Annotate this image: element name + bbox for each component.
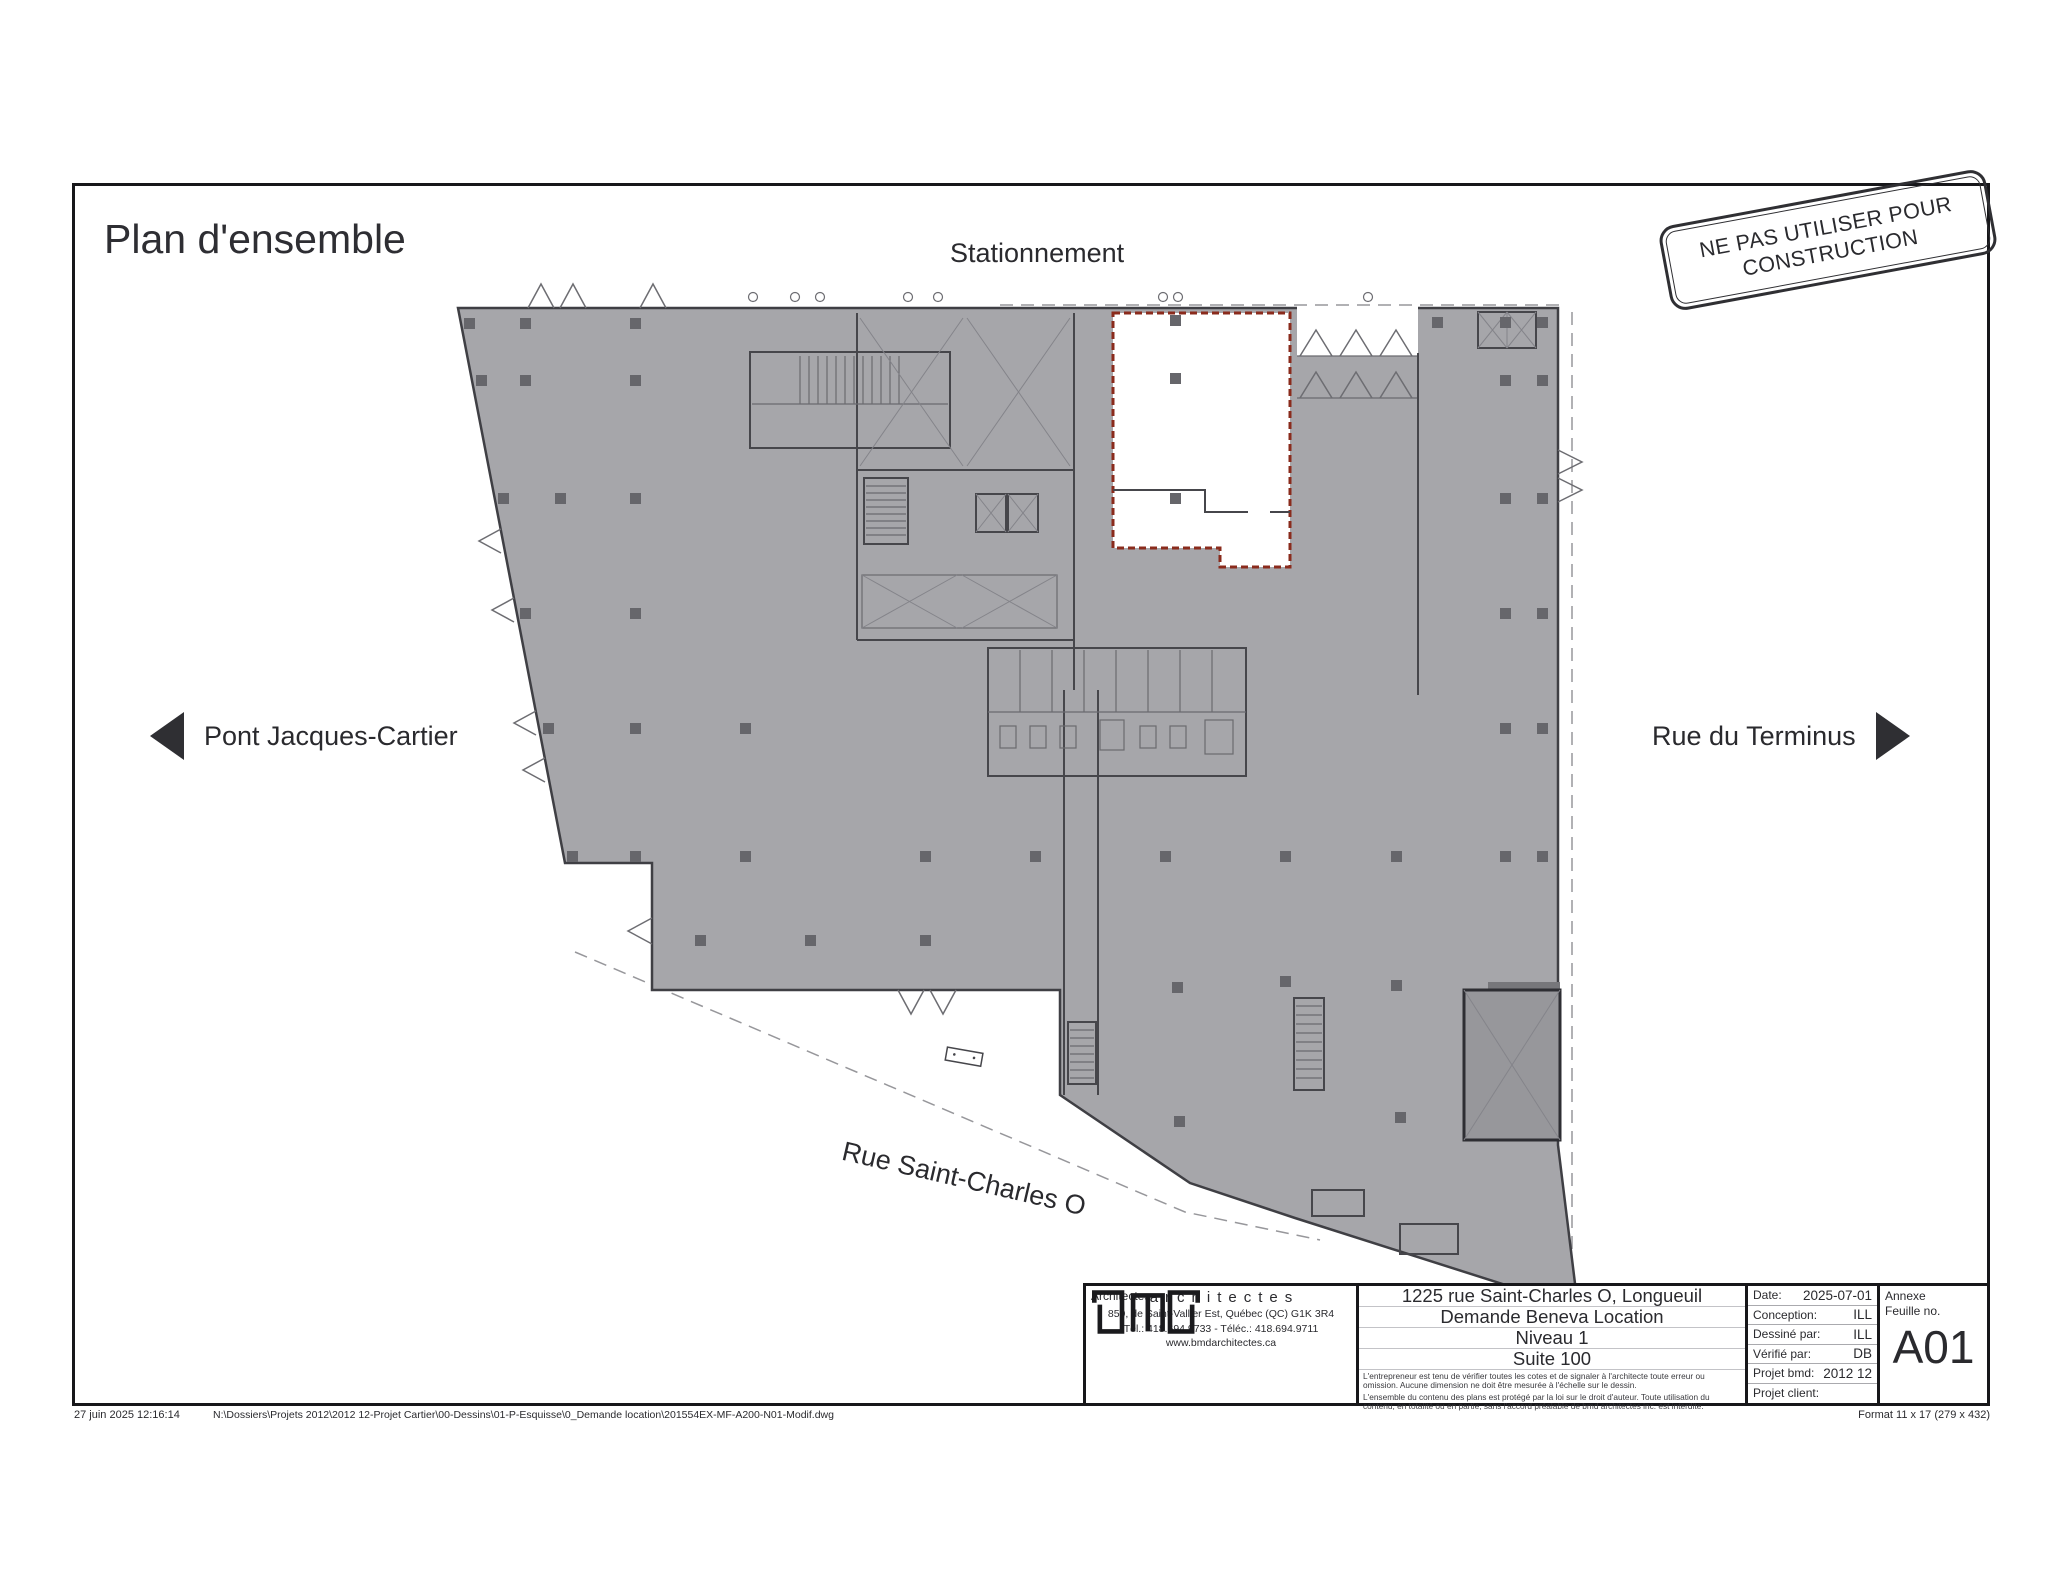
project-level: Niveau 1 [1359, 1328, 1745, 1349]
drawing-sheet: Plan d'ensemble Stationnement Pont Jacqu… [0, 0, 2048, 1583]
road-left-text: Pont Jacques-Cartier [204, 721, 458, 752]
title-block: Architectes architectes 850, de Saint-Va… [1083, 1283, 1990, 1406]
disclaimer-1: L'entrepreneur est tenu de vérifier tout… [1359, 1370, 1745, 1391]
road-label-right: Rue du Terminus [1652, 712, 1910, 760]
fields-cell: Date: 2025-07-01 Conception: ILL Dessiné… [1745, 1286, 1877, 1403]
plot-datetime: 27 juin 2025 12:16:14 [74, 1409, 180, 1421]
file-path: N:\Dossiers\Projets 2012\2012 12-Projet … [213, 1409, 834, 1421]
label-stationnement: Stationnement [950, 238, 1124, 269]
project-address: 1225 rue Saint-Charles O, Longueuil [1359, 1286, 1745, 1307]
field-project-bmd: Projet bmd: 2012 12 [1748, 1364, 1877, 1384]
bmd-logo [1086, 1288, 1206, 1336]
arrow-left-icon [150, 712, 184, 760]
project-suite: Suite 100 [1359, 1349, 1745, 1370]
grid-bubbles [749, 293, 1373, 302]
architect-website: www.bmdarchitectes.ca [1166, 1337, 1276, 1350]
field-conception: Conception: ILL [1748, 1306, 1877, 1326]
project-name: Demande Beneva Location [1359, 1307, 1745, 1328]
road-label-left: Pont Jacques-Cartier [150, 712, 458, 760]
field-verified-by: Vérifié par: DB [1748, 1345, 1877, 1365]
sheet-number: A01 [1880, 1320, 1987, 1374]
sheet-format: Format 11 x 17 (279 x 432) [1858, 1409, 1990, 1421]
sheet-cell: Annexe Feuille no. A01 [1877, 1286, 1987, 1403]
arrow-right-icon [1876, 712, 1910, 760]
annexe-label: Annexe [1885, 1289, 1926, 1303]
architect-identity: architectes 850, de Saint-Vallier Est, Q… [1086, 1288, 1356, 1350]
field-date: Date: 2025-07-01 [1748, 1286, 1877, 1306]
mech-room [1464, 982, 1560, 1140]
sheet-label: Feuille no. [1885, 1304, 1940, 1318]
architect-cell: Architectes architectes 850, de Saint-Va… [1086, 1286, 1356, 1403]
road-right-text: Rue du Terminus [1652, 721, 1856, 752]
project-cell: 1225 rue Saint-Charles O, Longueuil Dema… [1356, 1286, 1745, 1403]
disclaimer-2: L'ensemble du contenu des plans est prot… [1359, 1391, 1745, 1412]
field-drawn-by: Dessiné par: ILL [1748, 1325, 1877, 1345]
field-project-client: Projet client: [1748, 1384, 1877, 1404]
building-footprint [458, 308, 1578, 1308]
site-sign [945, 1047, 983, 1066]
suite-outline [1113, 313, 1290, 567]
page-title: Plan d'ensemble [104, 216, 406, 263]
